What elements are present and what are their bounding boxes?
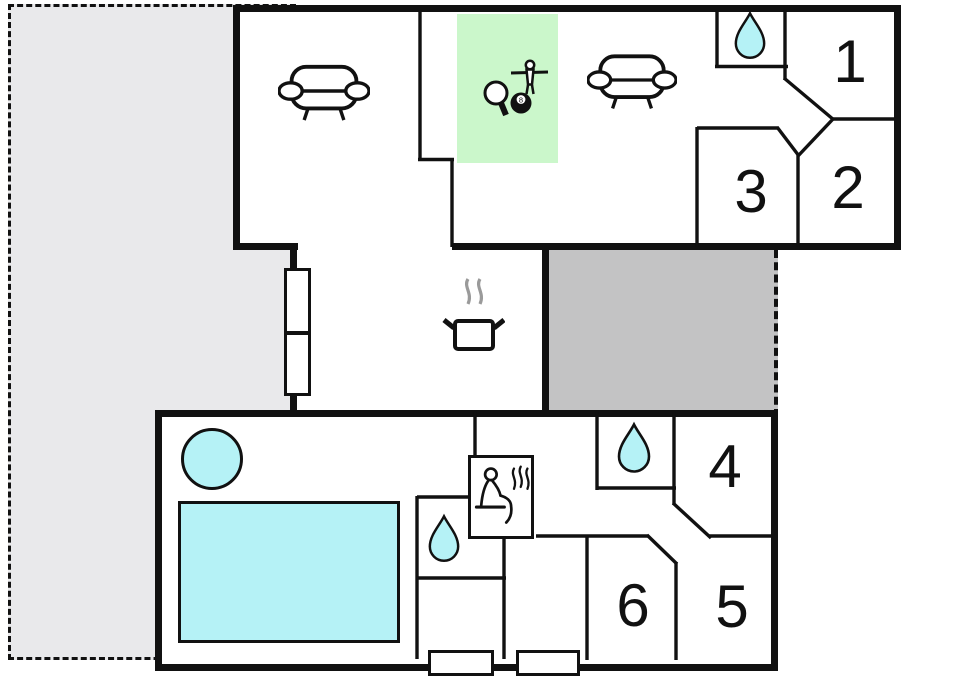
svg-text:8: 8 <box>519 95 523 104</box>
foosball-player-icon <box>511 61 548 94</box>
water-drop-icon <box>616 420 652 477</box>
entrance-step <box>428 650 494 676</box>
water-drop-icon <box>733 9 767 63</box>
room-number-3: 3 <box>734 162 767 222</box>
sofa-icon <box>278 60 370 122</box>
round-table <box>181 428 243 490</box>
floor-plan: 8 <box>0 0 960 677</box>
entrance-step <box>516 650 580 676</box>
sauna-icon <box>471 458 530 535</box>
stove-icon <box>441 274 505 354</box>
room-number-1: 1 <box>833 32 866 92</box>
sauna-cabin <box>468 455 534 539</box>
billiard-ball-icon: 8 <box>511 93 532 114</box>
table-tennis-paddle-icon <box>485 82 507 115</box>
room-number-5: 5 <box>715 577 748 637</box>
room-number-6: 6 <box>616 576 649 636</box>
door-panel <box>284 268 311 334</box>
water-drop-icon <box>427 511 461 567</box>
room-number-2: 2 <box>831 158 864 218</box>
swimming-pool <box>178 501 400 643</box>
door-panel <box>284 332 311 396</box>
sofa-icon <box>587 50 677 110</box>
room-number-4: 4 <box>708 437 741 497</box>
games-icon: 8 <box>481 58 551 120</box>
